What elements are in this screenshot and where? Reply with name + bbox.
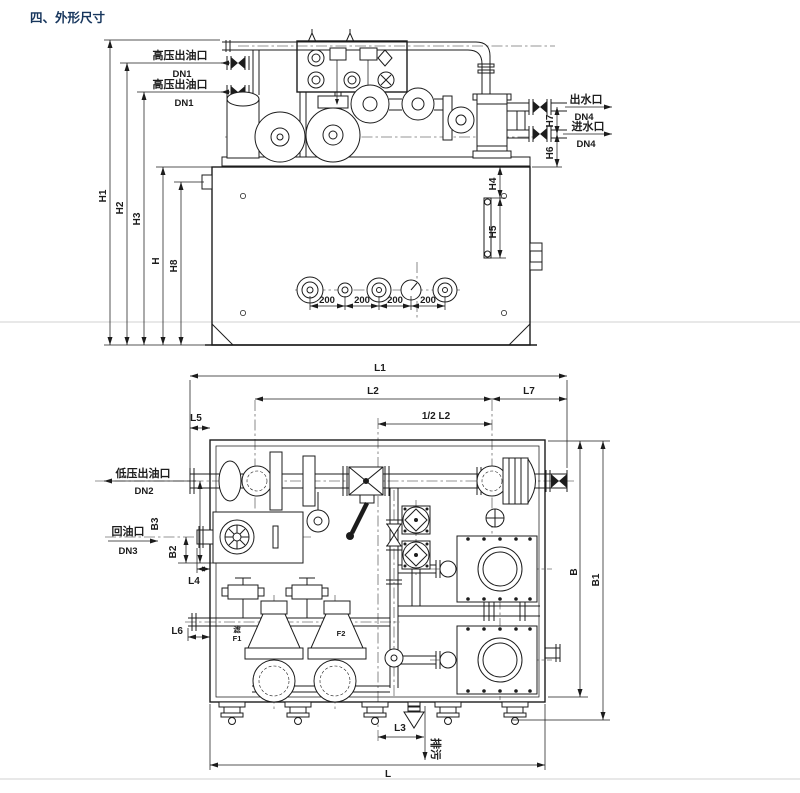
dim-h5: H5 (488, 225, 499, 238)
manifold-valve-1 (222, 578, 264, 599)
spacing-label: 200 (387, 295, 403, 306)
dim-l4: L4 (188, 576, 200, 587)
dim-h: H (151, 257, 162, 264)
dim-l5: L5 (190, 413, 202, 424)
filter1-cn-label: 滤 (233, 624, 241, 634)
page-title: 四、外形尺寸 (30, 10, 106, 25)
dim-h2: H2 (115, 201, 126, 214)
pump-box-1 (440, 536, 537, 602)
lp-outlet-dn: DN2 (134, 486, 153, 497)
dim-b1: B1 (591, 573, 602, 586)
spacing-label: 200 (319, 295, 335, 306)
dim-h3: H3 (132, 212, 143, 225)
dim-l3: L3 (394, 723, 406, 734)
water-outlet-label: 出水口 (570, 92, 603, 106)
feet-row (219, 702, 528, 728)
front-view: 200 200 200 200 H1 H2 H3 H H8 (98, 29, 612, 345)
cooler-cylinder (473, 94, 511, 158)
dim-l2: L2 (367, 386, 379, 397)
drawing-page: 四、外形尺寸 (0, 0, 800, 793)
foot (285, 702, 311, 725)
dim-h4: H4 (488, 177, 499, 190)
drain-valve (404, 702, 424, 728)
plan-view: 滤 F1 F2 L1 (95, 363, 610, 780)
pump-motor-1 (255, 112, 305, 162)
foot (362, 702, 388, 725)
drain-label: 排污 (429, 738, 443, 760)
valve-lever-pivot (360, 495, 374, 503)
valve-block-pair (402, 506, 430, 569)
foot (219, 702, 245, 725)
outline-dimension-drawing: 四、外形尺寸 (0, 0, 800, 793)
dim-l1: L1 (374, 363, 386, 374)
spacing-label: 200 (354, 295, 370, 306)
spacing-label: 200 (420, 295, 436, 306)
water-inlet-dn: DN4 (576, 139, 596, 150)
valve-diamond-icon (378, 50, 392, 66)
filter2-label: F2 (337, 629, 346, 638)
filter-1 (245, 601, 303, 702)
foot (435, 702, 461, 725)
hp-outlet-label-1: 高压出油口 (153, 48, 208, 62)
hp-outlet-label-2: 高压出油口 (153, 77, 208, 91)
dim-h8: H8 (169, 259, 180, 272)
motor-box (197, 512, 303, 563)
dim-b2: B2 (168, 545, 179, 558)
dim-l7: L7 (523, 386, 535, 397)
dim-b: B (569, 568, 580, 575)
water-inlet-label: 进水口 (572, 119, 605, 133)
dim-h7: H7 (545, 114, 556, 127)
hp-outlet-dn-2: DN1 (174, 98, 194, 109)
oil-return-dn: DN3 (118, 546, 137, 557)
dim-h6: H6 (545, 146, 556, 159)
dim-h1: H1 (98, 189, 109, 202)
switch-icon (330, 48, 346, 60)
filter1-label: F1 (233, 634, 242, 643)
switch-icon (360, 48, 377, 60)
valve-lever (352, 503, 367, 533)
water-inlet-valve-icon (529, 126, 551, 142)
foot (502, 702, 528, 725)
hp-outlet-valve-icon-1 (227, 56, 249, 70)
pump-box-2 (440, 626, 537, 694)
accumulator-vessel (227, 92, 259, 158)
cross-valve (343, 466, 389, 540)
exchanger-right (477, 458, 536, 527)
water-outlet-valve-icon (529, 99, 551, 115)
oil-tank (202, 167, 542, 345)
control-panel (297, 41, 407, 105)
dim-l: L (385, 769, 391, 780)
oil-return-label: 回油口 (112, 524, 145, 538)
manifold-valve-2 (286, 578, 328, 599)
dim-half-l2: 1/2 L2 (422, 411, 451, 422)
lp-outlet-label: 低压出油口 (115, 466, 171, 480)
tank-bracket (530, 243, 542, 251)
filter-2 (308, 601, 366, 702)
dim-l6: L6 (171, 626, 183, 637)
dim-b3: B3 (150, 517, 161, 530)
